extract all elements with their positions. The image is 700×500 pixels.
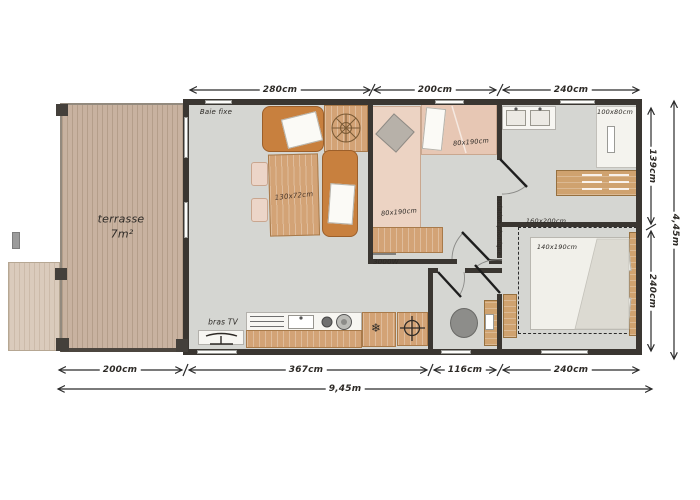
window xyxy=(197,350,237,354)
sink-basin xyxy=(530,110,550,126)
side-cabinet xyxy=(324,105,368,152)
wall-wc-top xyxy=(465,268,502,273)
kitchen-sink xyxy=(288,315,314,329)
dim-top-1: 280cm xyxy=(260,85,301,95)
wall-central xyxy=(497,104,502,160)
dim-right-2: 240cm xyxy=(647,272,657,311)
dim-bottom-4: 240cm xyxy=(551,365,592,375)
shower-size-label: 100x80cm xyxy=(597,108,633,116)
chair xyxy=(251,162,268,186)
snowflake-icon: ❄ xyxy=(371,321,381,335)
sofa-cushion xyxy=(328,183,356,225)
wall-central xyxy=(497,294,502,350)
kitchen-base-cabinet xyxy=(246,330,362,348)
window xyxy=(541,350,588,354)
insulation-note: Isolation phonique xyxy=(496,197,503,256)
dim-top-2: 200cm xyxy=(415,85,456,95)
dresser-drawers xyxy=(609,174,629,192)
flush-plate xyxy=(485,314,494,330)
counter-vent xyxy=(250,316,284,328)
sink-basin xyxy=(506,110,526,126)
terrace-extension xyxy=(8,262,60,351)
pillow-white xyxy=(609,240,631,273)
dim-right-1: 139cm xyxy=(647,147,657,186)
wall-bedroom2-south xyxy=(489,259,502,264)
storage-chest xyxy=(371,227,443,253)
dim-bottom-1: 200cm xyxy=(100,365,141,375)
bay-window-label: Baie fixe xyxy=(200,108,232,116)
window xyxy=(560,100,595,104)
chair xyxy=(251,198,268,222)
window xyxy=(435,100,464,104)
window xyxy=(441,350,471,354)
wall-wc-top xyxy=(433,268,438,273)
wardrobe xyxy=(503,294,517,338)
wall-bathroom-south xyxy=(502,222,637,227)
terrace-post xyxy=(176,339,188,352)
terrace-post xyxy=(55,268,67,280)
floor-plan: ❄ xyxy=(0,0,700,500)
sliding-bay-glass xyxy=(184,117,188,158)
terrace-label: terrasse xyxy=(98,213,145,226)
wall-wc-left xyxy=(428,268,433,353)
tv-stand xyxy=(198,330,244,345)
wall-living-bedroom2 xyxy=(368,105,373,262)
bed-zone-label: 160x200cm xyxy=(526,217,566,225)
dresser-drawers xyxy=(582,174,602,192)
dim-bottom-2: 367cm xyxy=(286,365,327,375)
toilet xyxy=(450,308,478,338)
terrace-post xyxy=(56,338,69,351)
window xyxy=(205,100,232,104)
pillow-white xyxy=(610,296,632,330)
shower-column xyxy=(607,126,615,153)
heater-label: 3000W xyxy=(373,258,399,266)
sliding-bay-glass xyxy=(184,202,188,238)
kitchen-unit xyxy=(397,312,428,346)
terrace-area-label: 7m² xyxy=(111,228,134,241)
tv-bracket-label: bras TV xyxy=(208,318,238,327)
wall-right xyxy=(636,99,642,355)
dim-right-total: 4,45m xyxy=(670,212,680,249)
bed-size-label: 140x190cm xyxy=(537,243,577,251)
terrace-post xyxy=(56,104,68,116)
dim-bottom-3: 116cm xyxy=(445,365,486,375)
terrace-step xyxy=(12,232,20,249)
dim-bottom-total: 9,45m xyxy=(326,384,365,394)
dim-top-3: 240cm xyxy=(551,85,592,95)
